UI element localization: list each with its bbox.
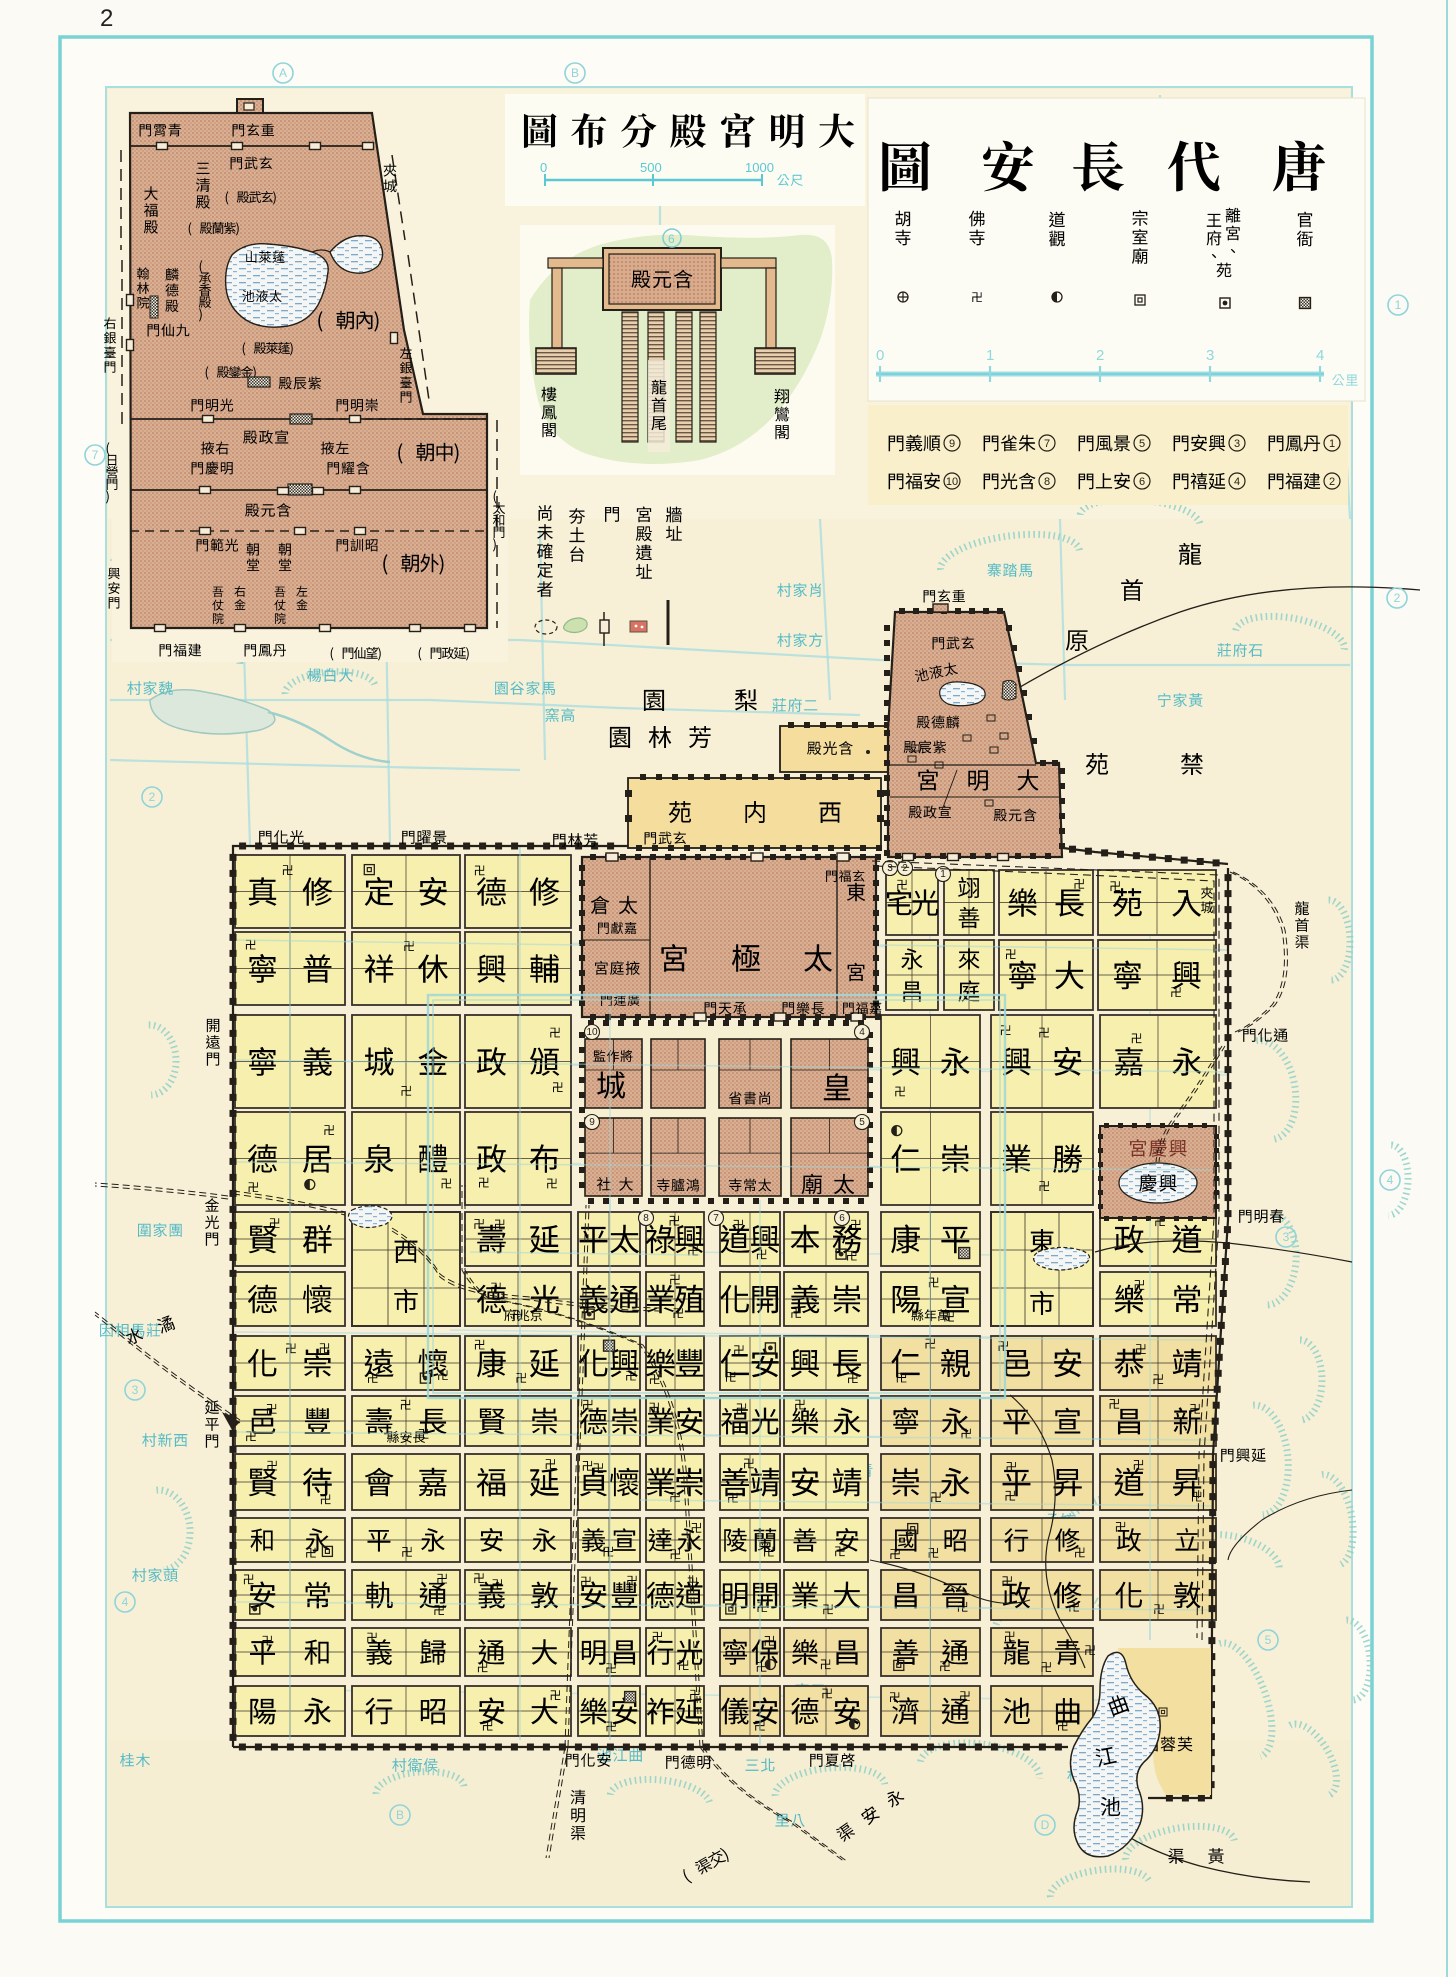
svg-text:9: 9: [949, 438, 955, 450]
svg-text:2: 2: [1329, 476, 1335, 488]
svg-text:6: 6: [668, 232, 675, 246]
svg-text:6: 6: [1139, 476, 1145, 488]
svg-text:2: 2: [1394, 591, 1401, 605]
svg-text:5: 5: [1139, 438, 1145, 450]
svg-text:5: 5: [1265, 1633, 1272, 1647]
svg-text:B: B: [396, 1808, 404, 1822]
svg-text:8: 8: [1044, 476, 1050, 488]
svg-text:7: 7: [713, 1213, 719, 1224]
svg-text:7: 7: [1044, 438, 1050, 450]
svg-text:1: 1: [986, 347, 994, 364]
svg-text:3: 3: [1234, 438, 1240, 450]
svg-text:1: 1: [1329, 438, 1335, 450]
svg-text:6: 6: [839, 1213, 845, 1224]
svg-text:8: 8: [643, 1213, 649, 1224]
svg-text:1: 1: [940, 869, 946, 880]
svg-text:5: 5: [859, 1117, 865, 1128]
svg-text:0: 0: [540, 160, 547, 175]
svg-text:A: A: [279, 66, 287, 80]
svg-text:10: 10: [586, 1027, 598, 1038]
svg-text:7: 7: [92, 448, 99, 462]
svg-text:3: 3: [1283, 1230, 1290, 1244]
svg-text:10: 10: [946, 476, 958, 488]
svg-text:9: 9: [589, 1117, 595, 1128]
svg-text:4: 4: [1234, 476, 1240, 488]
svg-text:1000: 1000: [745, 160, 774, 175]
svg-text:4: 4: [1387, 1173, 1394, 1187]
svg-text:D: D: [1041, 1818, 1050, 1832]
svg-text:2: 2: [149, 790, 156, 804]
svg-text:3: 3: [1206, 347, 1214, 364]
svg-text:0: 0: [876, 347, 884, 364]
svg-text:4: 4: [859, 1027, 865, 1038]
svg-text:2: 2: [1096, 347, 1104, 364]
svg-text:3: 3: [132, 1383, 139, 1397]
svg-text:2: 2: [902, 863, 908, 874]
svg-text:500: 500: [640, 160, 662, 175]
svg-text:1: 1: [1395, 298, 1402, 312]
svg-text:2: 2: [100, 5, 113, 32]
svg-text:B: B: [571, 66, 579, 80]
svg-text:4: 4: [122, 1595, 129, 1609]
svg-text:4: 4: [1316, 347, 1324, 364]
svg-text:3: 3: [887, 863, 893, 874]
